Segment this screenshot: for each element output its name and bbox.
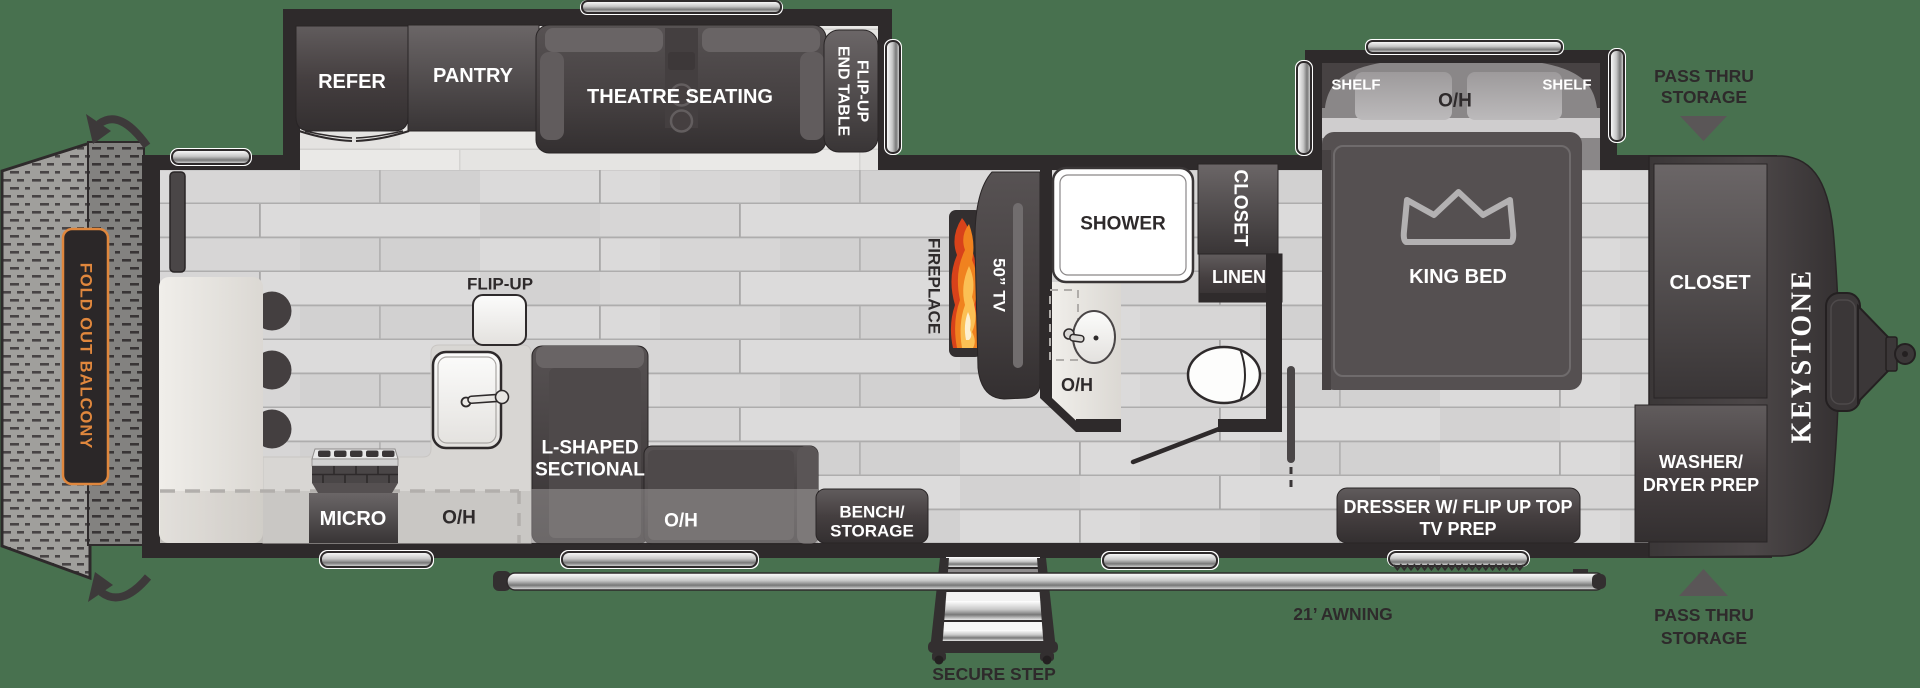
svg-text:SHOWER: SHOWER	[1080, 214, 1166, 235]
svg-text:FIREPLACE: FIREPLACE	[925, 238, 944, 334]
svg-text:STORAGE: STORAGE	[830, 522, 914, 541]
svg-text:STORAGE: STORAGE	[1661, 628, 1747, 648]
svg-text:O/H: O/H	[1061, 375, 1093, 395]
svg-text:THEATRE SEATING: THEATRE SEATING	[587, 86, 773, 108]
svg-text:O/H: O/H	[664, 511, 698, 532]
svg-text:SHELF: SHELF	[1542, 77, 1591, 94]
svg-text:SECTIONAL: SECTIONAL	[535, 460, 645, 481]
svg-text:MICRO: MICRO	[320, 508, 387, 530]
svg-text:FLIP-UP: FLIP-UP	[467, 275, 533, 294]
svg-text:DRYER PREP: DRYER PREP	[1643, 475, 1759, 495]
svg-text:REFER: REFER	[318, 71, 386, 93]
svg-text:FLIP-UP: FLIP-UP	[854, 60, 871, 123]
svg-text:CLOSET: CLOSET	[1230, 169, 1251, 246]
svg-text:CLOSET: CLOSET	[1669, 272, 1750, 294]
svg-text:WASHER/: WASHER/	[1659, 452, 1743, 472]
svg-text:FOLD OUT BALCONY: FOLD OUT BALCONY	[77, 263, 95, 450]
svg-text:DRESSER W/ FLIP UP TOP: DRESSER W/ FLIP UP TOP	[1343, 497, 1572, 517]
svg-text:STORAGE: STORAGE	[1661, 87, 1747, 107]
svg-text:PANTRY: PANTRY	[433, 65, 514, 87]
svg-text:LINEN: LINEN	[1212, 267, 1266, 287]
svg-text:KING BED: KING BED	[1409, 266, 1507, 288]
svg-text:50” TV: 50” TV	[990, 258, 1009, 313]
svg-text:21’ AWNING: 21’ AWNING	[1293, 604, 1393, 624]
svg-text:O/H: O/H	[1438, 91, 1472, 112]
svg-text:O/H: O/H	[442, 508, 476, 529]
svg-text:TV PREP: TV PREP	[1419, 519, 1496, 539]
svg-text:L-SHAPED: L-SHAPED	[541, 438, 638, 459]
svg-text:KEYSTONE: KEYSTONE	[1787, 268, 1818, 443]
svg-text:BENCH/: BENCH/	[839, 503, 904, 522]
svg-text:SHELF: SHELF	[1331, 77, 1380, 94]
svg-text:END TABLE: END TABLE	[835, 46, 852, 137]
svg-text:SECURE STEP: SECURE STEP	[932, 664, 1056, 684]
svg-text:PASS THRU: PASS THRU	[1654, 605, 1754, 625]
svg-text:PASS THRU: PASS THRU	[1654, 66, 1754, 86]
